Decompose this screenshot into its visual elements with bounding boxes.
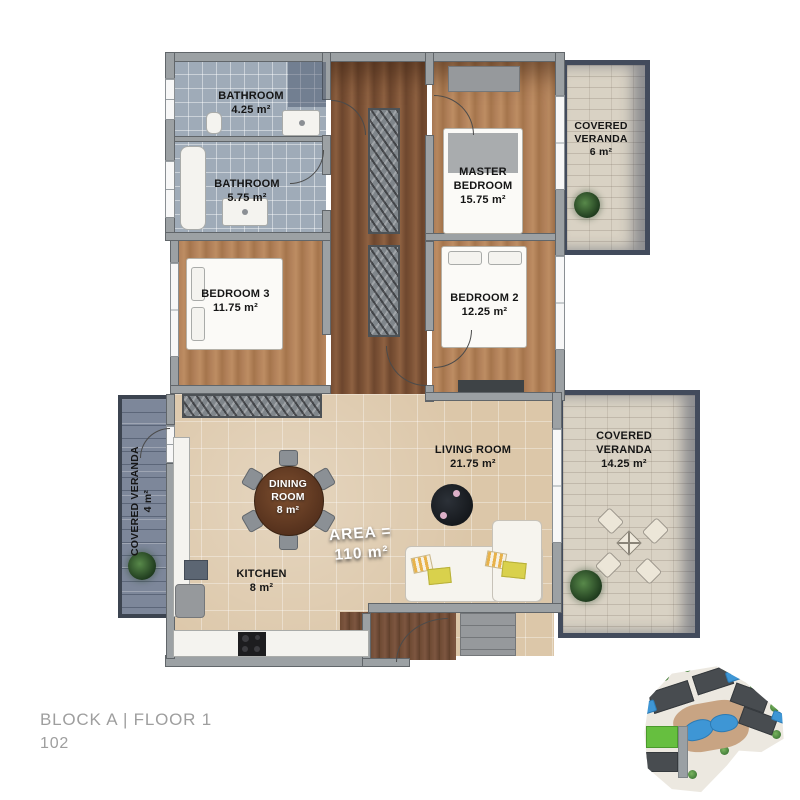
door-master-veranda bbox=[555, 95, 565, 190]
sofa-pillow-yellow bbox=[427, 567, 452, 585]
sitemap-tree bbox=[660, 672, 669, 681]
sofa-pillow-yellow bbox=[501, 561, 527, 579]
unit-number: 102 bbox=[40, 735, 69, 753]
room-area: 12.25 m² bbox=[442, 306, 527, 320]
room-area: 15.75 m² bbox=[443, 194, 523, 208]
wall-top bbox=[165, 52, 565, 62]
room-area: 4.25 m² bbox=[196, 104, 306, 118]
room-name: BATHROOM bbox=[218, 90, 284, 102]
wall-living-bottom bbox=[368, 603, 562, 613]
room-name: COVERED VERANDA bbox=[574, 120, 627, 145]
window-bathroom-top bbox=[165, 78, 175, 120]
burner bbox=[242, 635, 249, 642]
floor-plan-page: BATHROOM 4.25 m² BATHROOM 5.75 m² MASTER… bbox=[0, 0, 800, 800]
burner bbox=[242, 646, 248, 652]
sitemap-road bbox=[678, 726, 688, 778]
window-bedroom3 bbox=[170, 262, 179, 357]
wall-bedroom2-bottom bbox=[425, 392, 565, 401]
room-name: BATHROOM bbox=[214, 178, 280, 190]
master-dresser bbox=[448, 66, 520, 92]
burner bbox=[255, 635, 260, 640]
sitemap-building bbox=[646, 752, 678, 772]
sitemap-building-highlighted bbox=[646, 726, 678, 748]
label-dining-room: DINING ROOM 8 m² bbox=[258, 478, 318, 517]
room-area: 4 m² bbox=[142, 441, 155, 561]
plant-veranda-top bbox=[574, 192, 600, 218]
kitchen-appliance bbox=[175, 584, 205, 618]
dining-chair bbox=[279, 450, 298, 466]
wall-master-bedroom2 bbox=[425, 233, 565, 241]
plant-veranda-right bbox=[570, 570, 602, 602]
room-name: BEDROOM 3 bbox=[201, 288, 269, 300]
burner bbox=[254, 646, 260, 652]
sink-drain-mid bbox=[242, 209, 248, 215]
wall-bath-divider bbox=[174, 136, 327, 142]
label-veranda-top: COVERED VERANDA 6 m² bbox=[567, 120, 635, 159]
room-name: KITCHEN bbox=[236, 568, 286, 580]
hall-wardrobe-upper bbox=[368, 108, 400, 234]
hall-wardrobe-lower bbox=[368, 245, 400, 337]
room-name: COVERED VERANDA bbox=[596, 430, 652, 456]
sitemap-tree bbox=[688, 770, 697, 779]
rug-dot bbox=[453, 490, 460, 497]
living-wardrobe bbox=[182, 394, 322, 418]
wall-bedroom3-bottom bbox=[170, 385, 331, 394]
label-veranda-left: COVERED VERANDA 4 m² bbox=[129, 441, 155, 561]
wall-bath-bottom bbox=[165, 232, 331, 241]
total-area-label: AREA = 110 m² bbox=[305, 520, 418, 568]
room-area: 6 m² bbox=[567, 146, 635, 159]
sitemap-tree bbox=[682, 662, 692, 672]
label-master-bedroom: MASTER BEDROOM 15.75 m² bbox=[443, 166, 523, 207]
room-area: 5.75 m² bbox=[192, 192, 302, 206]
kitchen-counter-bottom bbox=[173, 630, 369, 657]
kitchen-sink bbox=[184, 560, 208, 580]
room-area: 8 m² bbox=[214, 582, 309, 596]
dining-chair bbox=[279, 534, 298, 550]
site-plan-thumbnail bbox=[622, 650, 794, 798]
entry-steps bbox=[460, 612, 516, 656]
block-floor-caption: BLOCK A | FLOOR 1 bbox=[40, 710, 212, 730]
label-bathroom-top: BATHROOM 4.25 m² bbox=[196, 90, 306, 118]
label-living-room: LIVING ROOM 21.75 m² bbox=[414, 444, 532, 472]
wall-hall-bedroom2 bbox=[425, 241, 434, 331]
bedroom2-pillow-right bbox=[488, 251, 522, 265]
label-bedroom3: BEDROOM 3 11.75 m² bbox=[193, 288, 278, 316]
bedroom2-pillow-left bbox=[448, 251, 482, 265]
wall-hall-master-a bbox=[425, 52, 434, 85]
wall-hall-master-b bbox=[425, 135, 434, 240]
round-rug bbox=[431, 484, 473, 526]
sitemap-pool bbox=[725, 668, 744, 683]
window-bedroom2 bbox=[555, 255, 565, 350]
sink-drain-top bbox=[299, 120, 305, 126]
room-area: 11.75 m² bbox=[193, 302, 278, 316]
window-bathroom-mid bbox=[165, 160, 175, 218]
room-area: 8 m² bbox=[258, 504, 318, 517]
wall-living-left-a bbox=[166, 394, 175, 425]
room-name: MASTER BEDROOM bbox=[454, 166, 513, 192]
room-name: LIVING ROOM bbox=[435, 444, 511, 456]
sliding-door-living-veranda bbox=[552, 428, 562, 543]
label-veranda-right: COVERED VERANDA 14.25 m² bbox=[578, 430, 670, 471]
room-name: COVERED VERANDA bbox=[129, 446, 141, 556]
label-bathroom-mid: BATHROOM 5.75 m² bbox=[192, 178, 302, 206]
bedroom2-console bbox=[458, 380, 524, 392]
room-area: 14.25 m² bbox=[578, 458, 670, 472]
rug-dot bbox=[440, 512, 447, 519]
room-name: DINING ROOM bbox=[269, 478, 307, 503]
label-kitchen: KITCHEN 8 m² bbox=[214, 568, 309, 596]
label-bedroom2: BEDROOM 2 12.25 m² bbox=[442, 292, 527, 320]
wall-bedroom3-hall bbox=[322, 240, 331, 335]
sitemap-pool bbox=[635, 699, 658, 717]
room-area: 21.75 m² bbox=[414, 458, 532, 472]
room-name: BEDROOM 2 bbox=[450, 292, 518, 304]
